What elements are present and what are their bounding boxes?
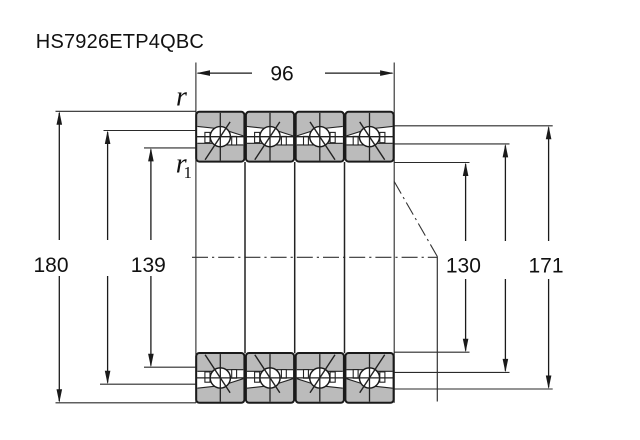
svg-text:130: 130 <box>446 255 481 278</box>
svg-text:96: 96 <box>270 62 293 85</box>
svg-text:HS7926ETP4QBC: HS7926ETP4QBC <box>36 31 204 53</box>
svg-text:1: 1 <box>184 163 193 182</box>
svg-text:180: 180 <box>33 254 68 277</box>
svg-text:r: r <box>176 82 187 113</box>
svg-text:171: 171 <box>528 255 563 278</box>
svg-text:139: 139 <box>131 254 166 277</box>
